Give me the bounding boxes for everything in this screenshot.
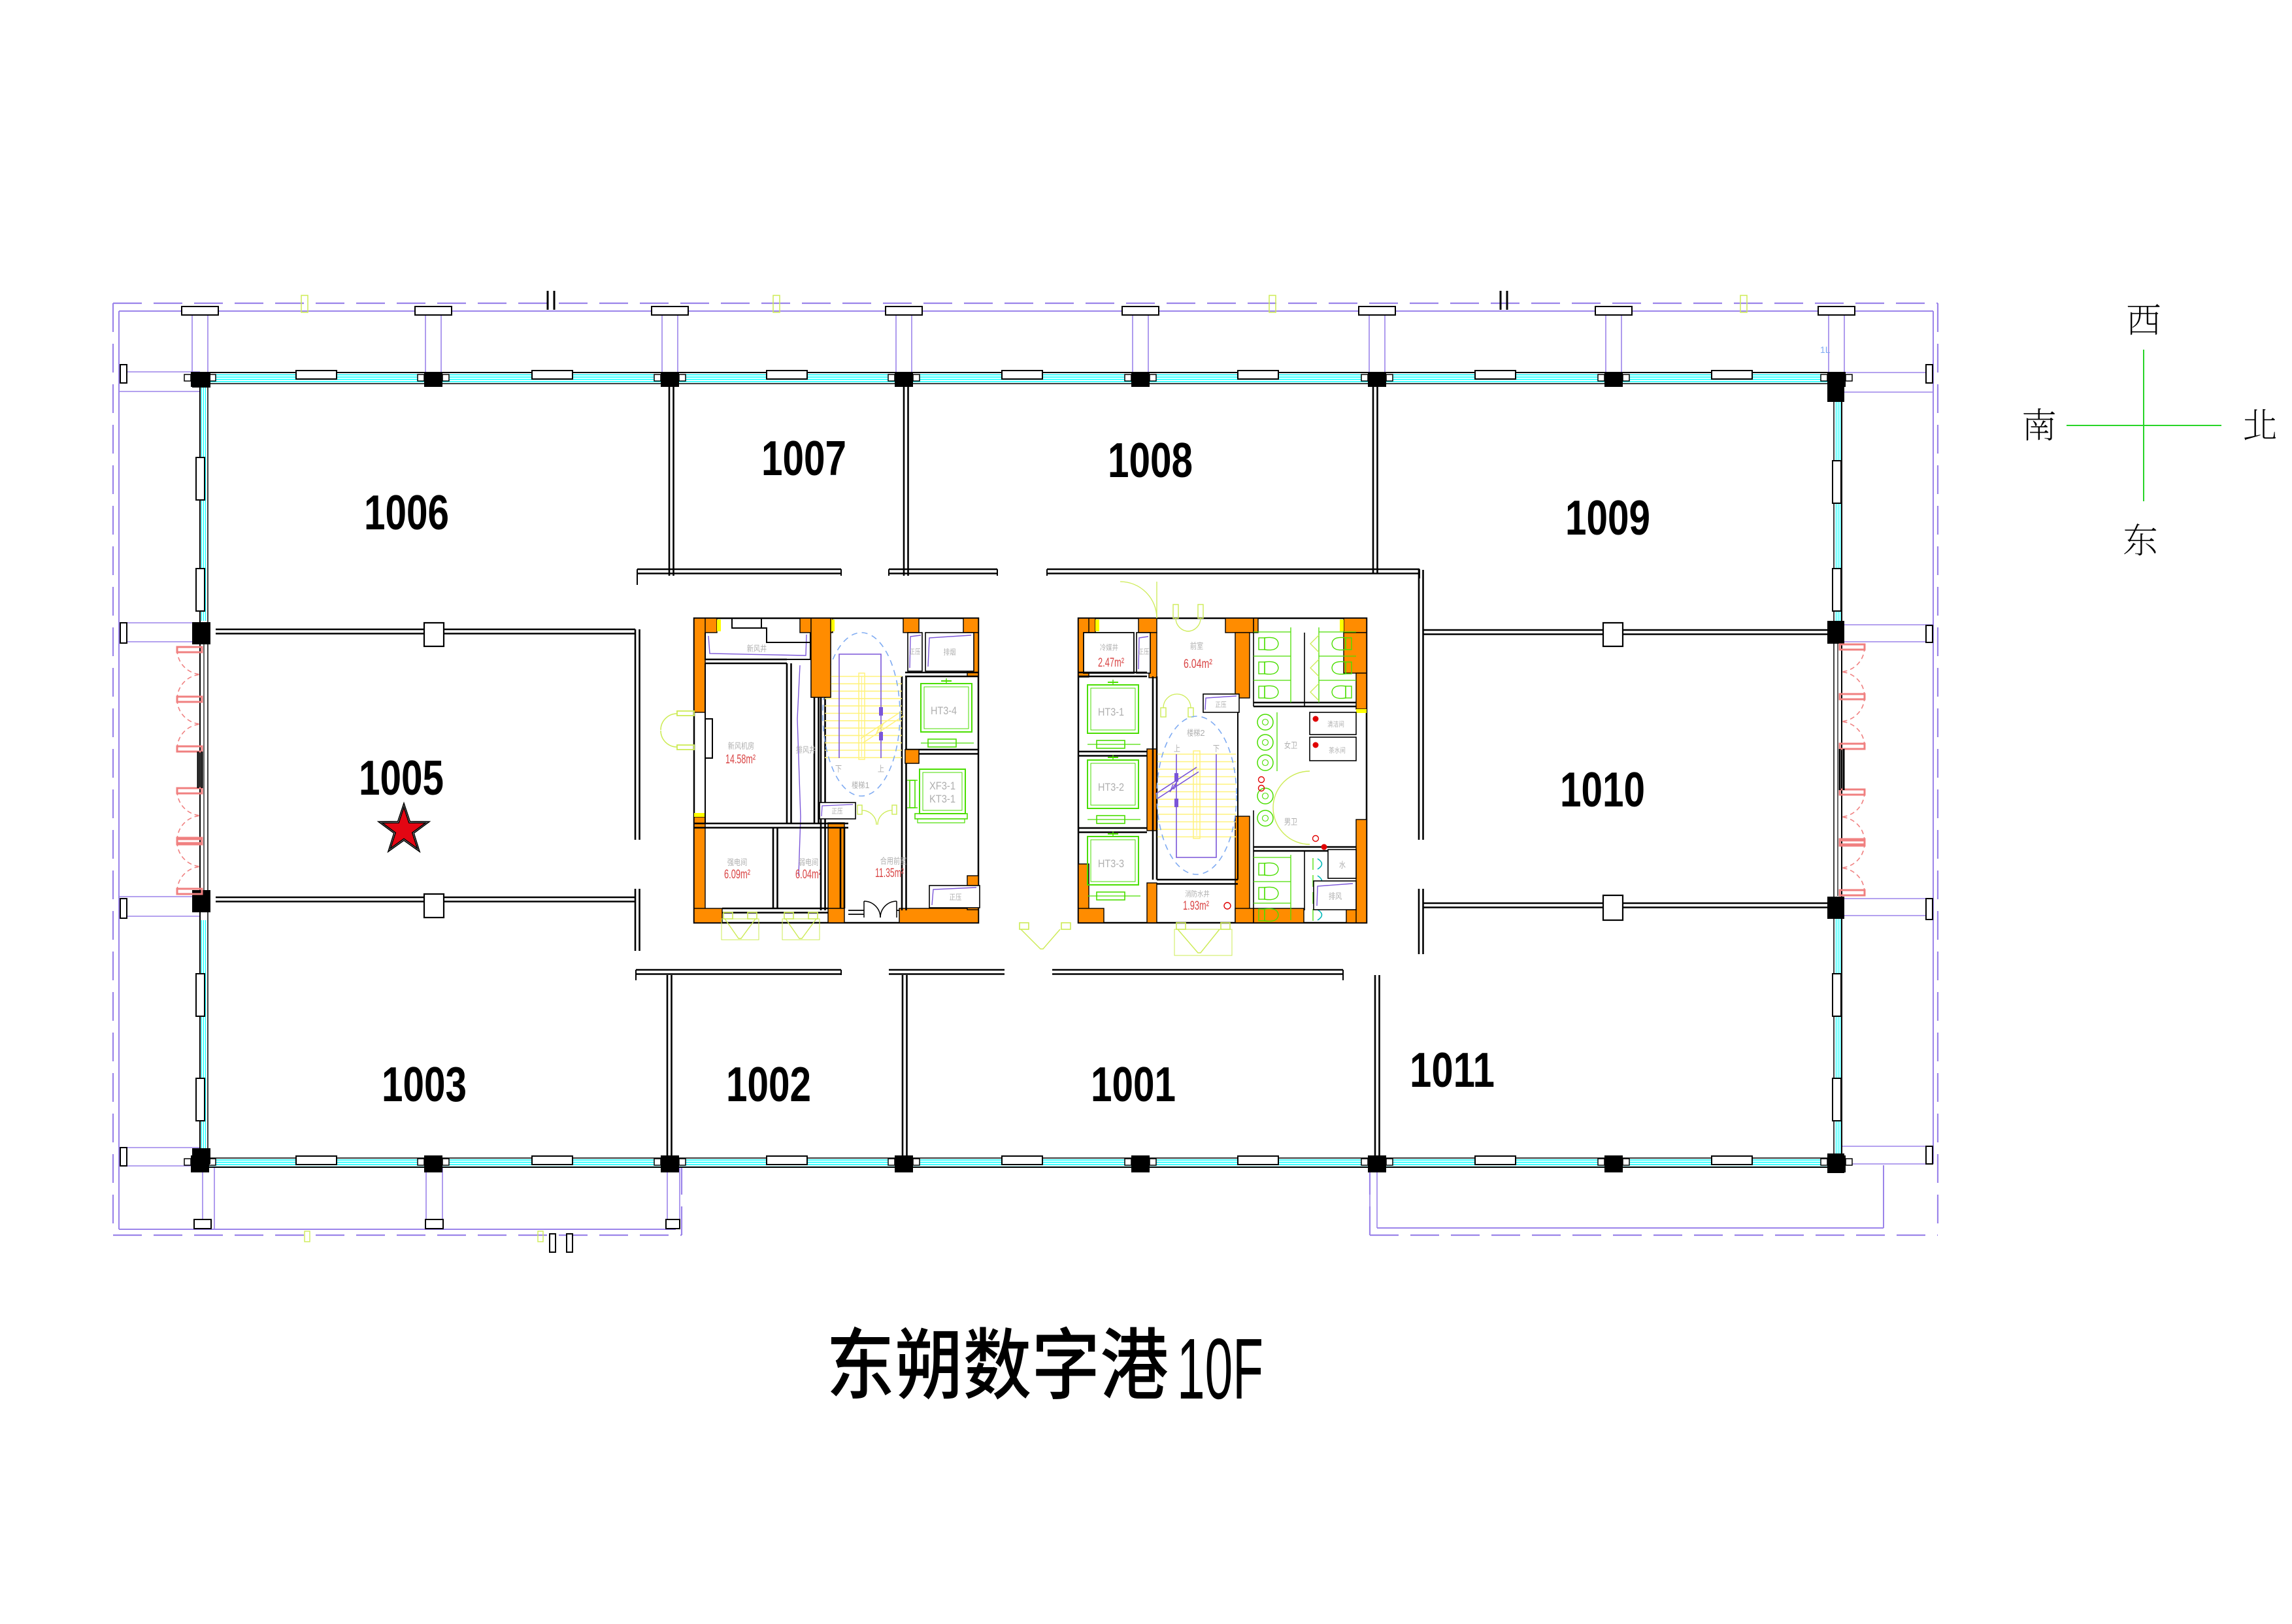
svg-text:HT3-2: HT3-2 [1098,781,1124,793]
svg-text:KT3-1: KT3-1 [929,793,955,805]
svg-text:1006: 1006 [364,485,449,540]
svg-text:10F: 10F [1177,1321,1263,1417]
svg-text:1009: 1009 [1565,490,1650,545]
svg-text:2.47m²: 2.47m² [1098,656,1124,670]
svg-text:1.93m²: 1.93m² [1183,899,1209,913]
svg-text:1011: 1011 [1410,1042,1495,1097]
svg-text:HT3-3: HT3-3 [1098,857,1124,870]
svg-text:1003: 1003 [382,1057,467,1112]
svg-text:14.58m²: 14.58m² [725,753,756,767]
svg-text:1008: 1008 [1108,433,1193,488]
svg-text:1010: 1010 [1560,762,1645,817]
svg-text:1L: 1L [1820,344,1831,355]
svg-text:6.09m²: 6.09m² [724,868,750,882]
svg-text:1001: 1001 [1091,1057,1176,1112]
svg-text:2: 2 [1200,728,1204,738]
svg-text:HT3-1: HT3-1 [1098,706,1124,718]
svg-text:HT3-4: HT3-4 [931,704,957,717]
svg-text:1002: 1002 [726,1057,811,1112]
svg-text:1: 1 [865,780,869,790]
svg-text:1007: 1007 [761,431,846,486]
svg-text:6.04m²: 6.04m² [795,868,822,882]
svg-text:6.04m²: 6.04m² [1184,657,1212,671]
svg-text:XF3-1: XF3-1 [929,780,955,792]
svg-text:1005: 1005 [359,750,444,805]
svg-text:11.35m²: 11.35m² [875,867,904,880]
